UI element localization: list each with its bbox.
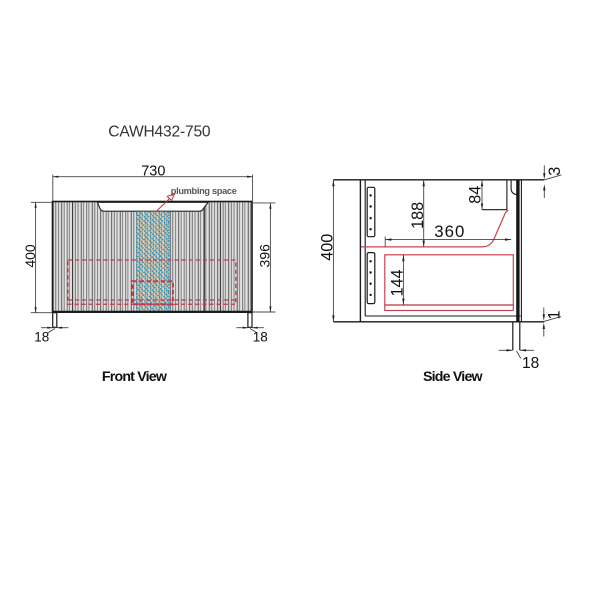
svg-text:3: 3 <box>546 167 564 176</box>
svg-text:plumbing space: plumbing space <box>171 186 237 196</box>
svg-text:730: 730 <box>141 163 165 179</box>
svg-text:1: 1 <box>546 310 564 319</box>
svg-text:18: 18 <box>522 355 539 372</box>
svg-text:396: 396 <box>257 244 273 268</box>
svg-text:400: 400 <box>319 234 337 261</box>
svg-text:84: 84 <box>466 186 484 204</box>
svg-text:18: 18 <box>34 330 49 345</box>
svg-text:Front View: Front View <box>102 369 168 385</box>
svg-text:360: 360 <box>434 222 465 241</box>
svg-text:CAWH432-750: CAWH432-750 <box>108 124 211 141</box>
svg-text:400: 400 <box>22 244 38 268</box>
svg-text:188: 188 <box>409 202 427 229</box>
svg-text:144: 144 <box>389 269 407 296</box>
svg-text:Side View: Side View <box>423 369 484 385</box>
svg-text:18: 18 <box>253 330 268 345</box>
